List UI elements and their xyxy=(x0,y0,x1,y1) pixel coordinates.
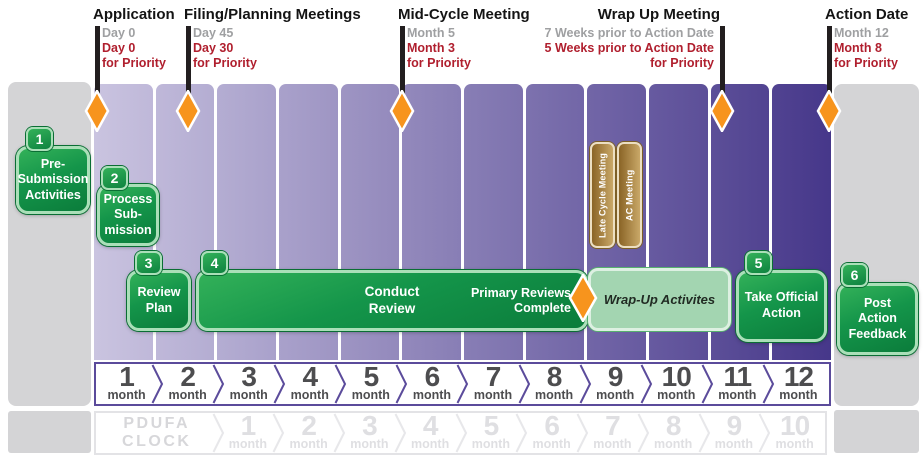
chevron-separator-icon xyxy=(212,364,225,404)
month-cell-4: 4month xyxy=(279,364,340,404)
month-number: 2 xyxy=(301,415,316,437)
month-cell-7: 7month xyxy=(462,364,523,404)
month-unit-label: month xyxy=(290,438,328,451)
month-unit-label: month xyxy=(291,389,329,402)
month-number: 3 xyxy=(241,366,256,388)
month-unit-label: month xyxy=(535,389,573,402)
pdufa-label-line1: PDUFA xyxy=(123,415,190,433)
month-cell-5: 5month xyxy=(340,364,401,404)
month-number: 10 xyxy=(662,366,691,388)
milestone-standard-date: Day 0 xyxy=(93,26,175,41)
conduct-review-label: Conduct Review xyxy=(365,284,420,318)
milestone-title: Mid-Cycle Meeting xyxy=(398,6,530,23)
milestone-filing: Filing/Planning Meetings Day 45 Day 30 f… xyxy=(184,6,361,71)
pdufa-clock-label: PDUFACLOCK xyxy=(96,413,218,453)
month-number: 8 xyxy=(666,415,681,437)
month-number: 8 xyxy=(547,366,562,388)
month-number: 4 xyxy=(302,366,317,388)
chevron-separator-icon xyxy=(579,364,592,404)
chevron-separator-icon xyxy=(576,413,589,453)
chevron-separator-icon xyxy=(698,413,711,453)
milestone-priority-date: Day 30 xyxy=(184,41,361,56)
right-gray-panel-bottom xyxy=(834,410,919,453)
milestone-standard-date: Month 12 xyxy=(825,26,908,41)
filing-diamond-icon xyxy=(175,90,201,132)
month-number: 4 xyxy=(423,415,438,437)
month-number-row: 1month2month3month4month5month6month7mon… xyxy=(94,362,831,406)
milestone-priority-date: 5 Weeks prior to Action Date xyxy=(545,41,722,56)
month-number: 7 xyxy=(486,366,501,388)
chevron-separator-icon xyxy=(762,364,775,404)
milestone-title: Action Date xyxy=(825,6,908,23)
primary-reviews-complete-label: Primary Reviews Complete xyxy=(471,286,571,316)
month-unit-label: month xyxy=(779,389,817,402)
wrap-up-diamond-icon xyxy=(709,90,735,132)
month-number: 9 xyxy=(727,415,742,437)
chevron-separator-icon xyxy=(272,413,285,453)
month-unit-label: month xyxy=(596,389,634,402)
step-1-badge: 1 xyxy=(26,127,53,151)
month-cell-3: 3month xyxy=(339,413,400,453)
step-4-badge: 4 xyxy=(201,251,228,275)
month-cell-7: 7month xyxy=(582,413,643,453)
chevron-separator-icon xyxy=(394,413,407,453)
milestone-mid-cycle: Mid-Cycle Meeting Month 5 Month 3 for Pr… xyxy=(398,6,530,71)
step-3-badge: 3 xyxy=(135,251,162,275)
step-2-badge: 2 xyxy=(101,166,128,190)
month-unit-label: month xyxy=(776,438,814,451)
month-unit-label: month xyxy=(654,438,692,451)
month-cell-9: 9month xyxy=(704,413,765,453)
month-unit-label: month xyxy=(169,389,207,402)
milestone-priority-suffix: for Priority xyxy=(825,56,908,71)
right-gray-panel xyxy=(834,84,919,406)
chevron-separator-icon xyxy=(212,413,225,453)
milestone-priority-date: Day 0 xyxy=(93,41,175,56)
chevron-separator-icon xyxy=(515,413,528,453)
month-unit-label: month xyxy=(718,389,756,402)
month-unit-label: month xyxy=(413,389,451,402)
primary-reviews-complete-diamond-icon xyxy=(568,274,598,322)
month-number: 12 xyxy=(784,366,813,388)
chevron-separator-icon xyxy=(637,413,650,453)
chevron-separator-icon xyxy=(455,413,468,453)
step-6-badge: 6 xyxy=(841,263,868,287)
milestone-title: Filing/Planning Meetings xyxy=(184,6,361,23)
month-cell-12: 12month xyxy=(768,364,829,404)
month-number: 2 xyxy=(180,366,195,388)
milestone-standard-date: Day 45 xyxy=(184,26,361,41)
milestone-priority-date: Month 8 xyxy=(825,41,908,56)
month-number: 1 xyxy=(119,366,134,388)
chevron-separator-icon xyxy=(456,364,469,404)
chevron-separator-icon xyxy=(640,364,653,404)
month-unit-label: month xyxy=(474,389,512,402)
month-cell-10: 10month xyxy=(764,413,825,453)
left-gray-panel-bottom xyxy=(8,411,91,453)
month-number: 10 xyxy=(780,415,809,437)
month-cell-1: 1month xyxy=(96,364,157,404)
month-number: 9 xyxy=(608,366,623,388)
month-cell-8: 8month xyxy=(524,364,585,404)
pdufa-label-line2: CLOCK xyxy=(122,433,191,451)
pdufa-clock-row: PDUFACLOCK1month2month3month4month5month… xyxy=(94,411,827,455)
ac-meeting-bar: AC Meeting xyxy=(617,142,642,248)
chevron-separator-icon xyxy=(758,413,771,453)
chevron-separator-icon xyxy=(334,364,347,404)
milestone-title: Wrap Up Meeting xyxy=(545,6,722,23)
step-5-take-official-action-box: Take Official Action xyxy=(736,270,827,342)
chevron-separator-icon xyxy=(701,364,714,404)
wrap-up-activities-box: Wrap-Up Activites xyxy=(588,268,731,331)
month-unit-label: month xyxy=(411,438,449,451)
month-number: 1 xyxy=(241,415,256,437)
action-date-diamond-icon xyxy=(816,90,842,132)
milestone-title: Application xyxy=(93,6,175,23)
month-number: 7 xyxy=(605,415,620,437)
month-unit-label: month xyxy=(715,438,753,451)
milestone-priority-suffix: for Priority xyxy=(184,56,361,71)
month-number: 6 xyxy=(425,366,440,388)
month-number: 3 xyxy=(362,415,377,437)
milestone-priority-suffix: for Priority xyxy=(93,56,175,71)
month-number: 11 xyxy=(724,366,752,388)
chevron-separator-icon xyxy=(518,364,531,404)
month-unit-label: month xyxy=(230,389,268,402)
pdufa-review-timeline-diagram: Application Day 0 Day 0 for Priority Fil… xyxy=(0,0,924,466)
milestone-priority-suffix: for Priority xyxy=(398,56,530,71)
month-cell-11: 11month xyxy=(707,364,768,404)
step-1-pre-submission-box: Pre- Submission Activities xyxy=(16,146,90,214)
step-4-conduct-review-bar: Conduct Review Primary Reviews Complete xyxy=(196,270,588,331)
month-cell-4: 4month xyxy=(400,413,461,453)
month-unit-label: month xyxy=(352,389,390,402)
step-5-badge: 5 xyxy=(745,251,772,275)
step-3-review-plan-box: Review Plan xyxy=(127,270,191,331)
month-cell-8: 8month xyxy=(643,413,704,453)
month-number: 5 xyxy=(364,366,379,388)
month-unit-label: month xyxy=(533,438,571,451)
month-cell-2: 2month xyxy=(157,364,218,404)
milestone-standard-date: 7 Weeks prior to Action Date xyxy=(545,26,722,41)
milestone-standard-date: Month 5 xyxy=(398,26,530,41)
month-number: 5 xyxy=(484,415,499,437)
chevron-separator-icon xyxy=(273,364,286,404)
month-cell-5: 5month xyxy=(461,413,522,453)
month-unit-label: month xyxy=(107,389,145,402)
step-2-process-submission-box: Process Sub- mission xyxy=(97,184,159,246)
milestone-application: Application Day 0 Day 0 for Priority xyxy=(93,6,175,71)
month-cell-10: 10month xyxy=(646,364,707,404)
milestone-action-date: Action Date Month 12 Month 8 for Priorit… xyxy=(825,6,908,71)
month-number: 6 xyxy=(544,415,559,437)
late-cycle-meeting-bar: Late Cycle Meeting xyxy=(590,142,615,248)
chevron-separator-icon xyxy=(151,364,164,404)
month-unit-label: month xyxy=(657,389,695,402)
milestone-priority-date: Month 3 xyxy=(398,41,530,56)
chevron-separator-icon xyxy=(333,413,346,453)
month-cell-6: 6month xyxy=(521,413,582,453)
month-cell-2: 2month xyxy=(278,413,339,453)
milestone-wrap-up: Wrap Up Meeting 7 Weeks prior to Action … xyxy=(545,6,722,71)
month-cell-9: 9month xyxy=(585,364,646,404)
month-cell-6: 6month xyxy=(401,364,462,404)
month-unit-label: month xyxy=(472,438,510,451)
month-cell-3: 3month xyxy=(218,364,279,404)
month-unit-label: month xyxy=(229,438,267,451)
application-diamond-icon xyxy=(84,90,110,132)
chevron-separator-icon xyxy=(395,364,408,404)
milestone-priority-suffix: for Priority xyxy=(545,56,722,71)
mid-cycle-diamond-icon xyxy=(389,90,415,132)
month-unit-label: month xyxy=(350,438,388,451)
month-cell-1: 1month xyxy=(218,413,279,453)
month-unit-label: month xyxy=(593,438,631,451)
step-6-post-action-feedback-box: Post Action Feedback xyxy=(837,283,918,355)
